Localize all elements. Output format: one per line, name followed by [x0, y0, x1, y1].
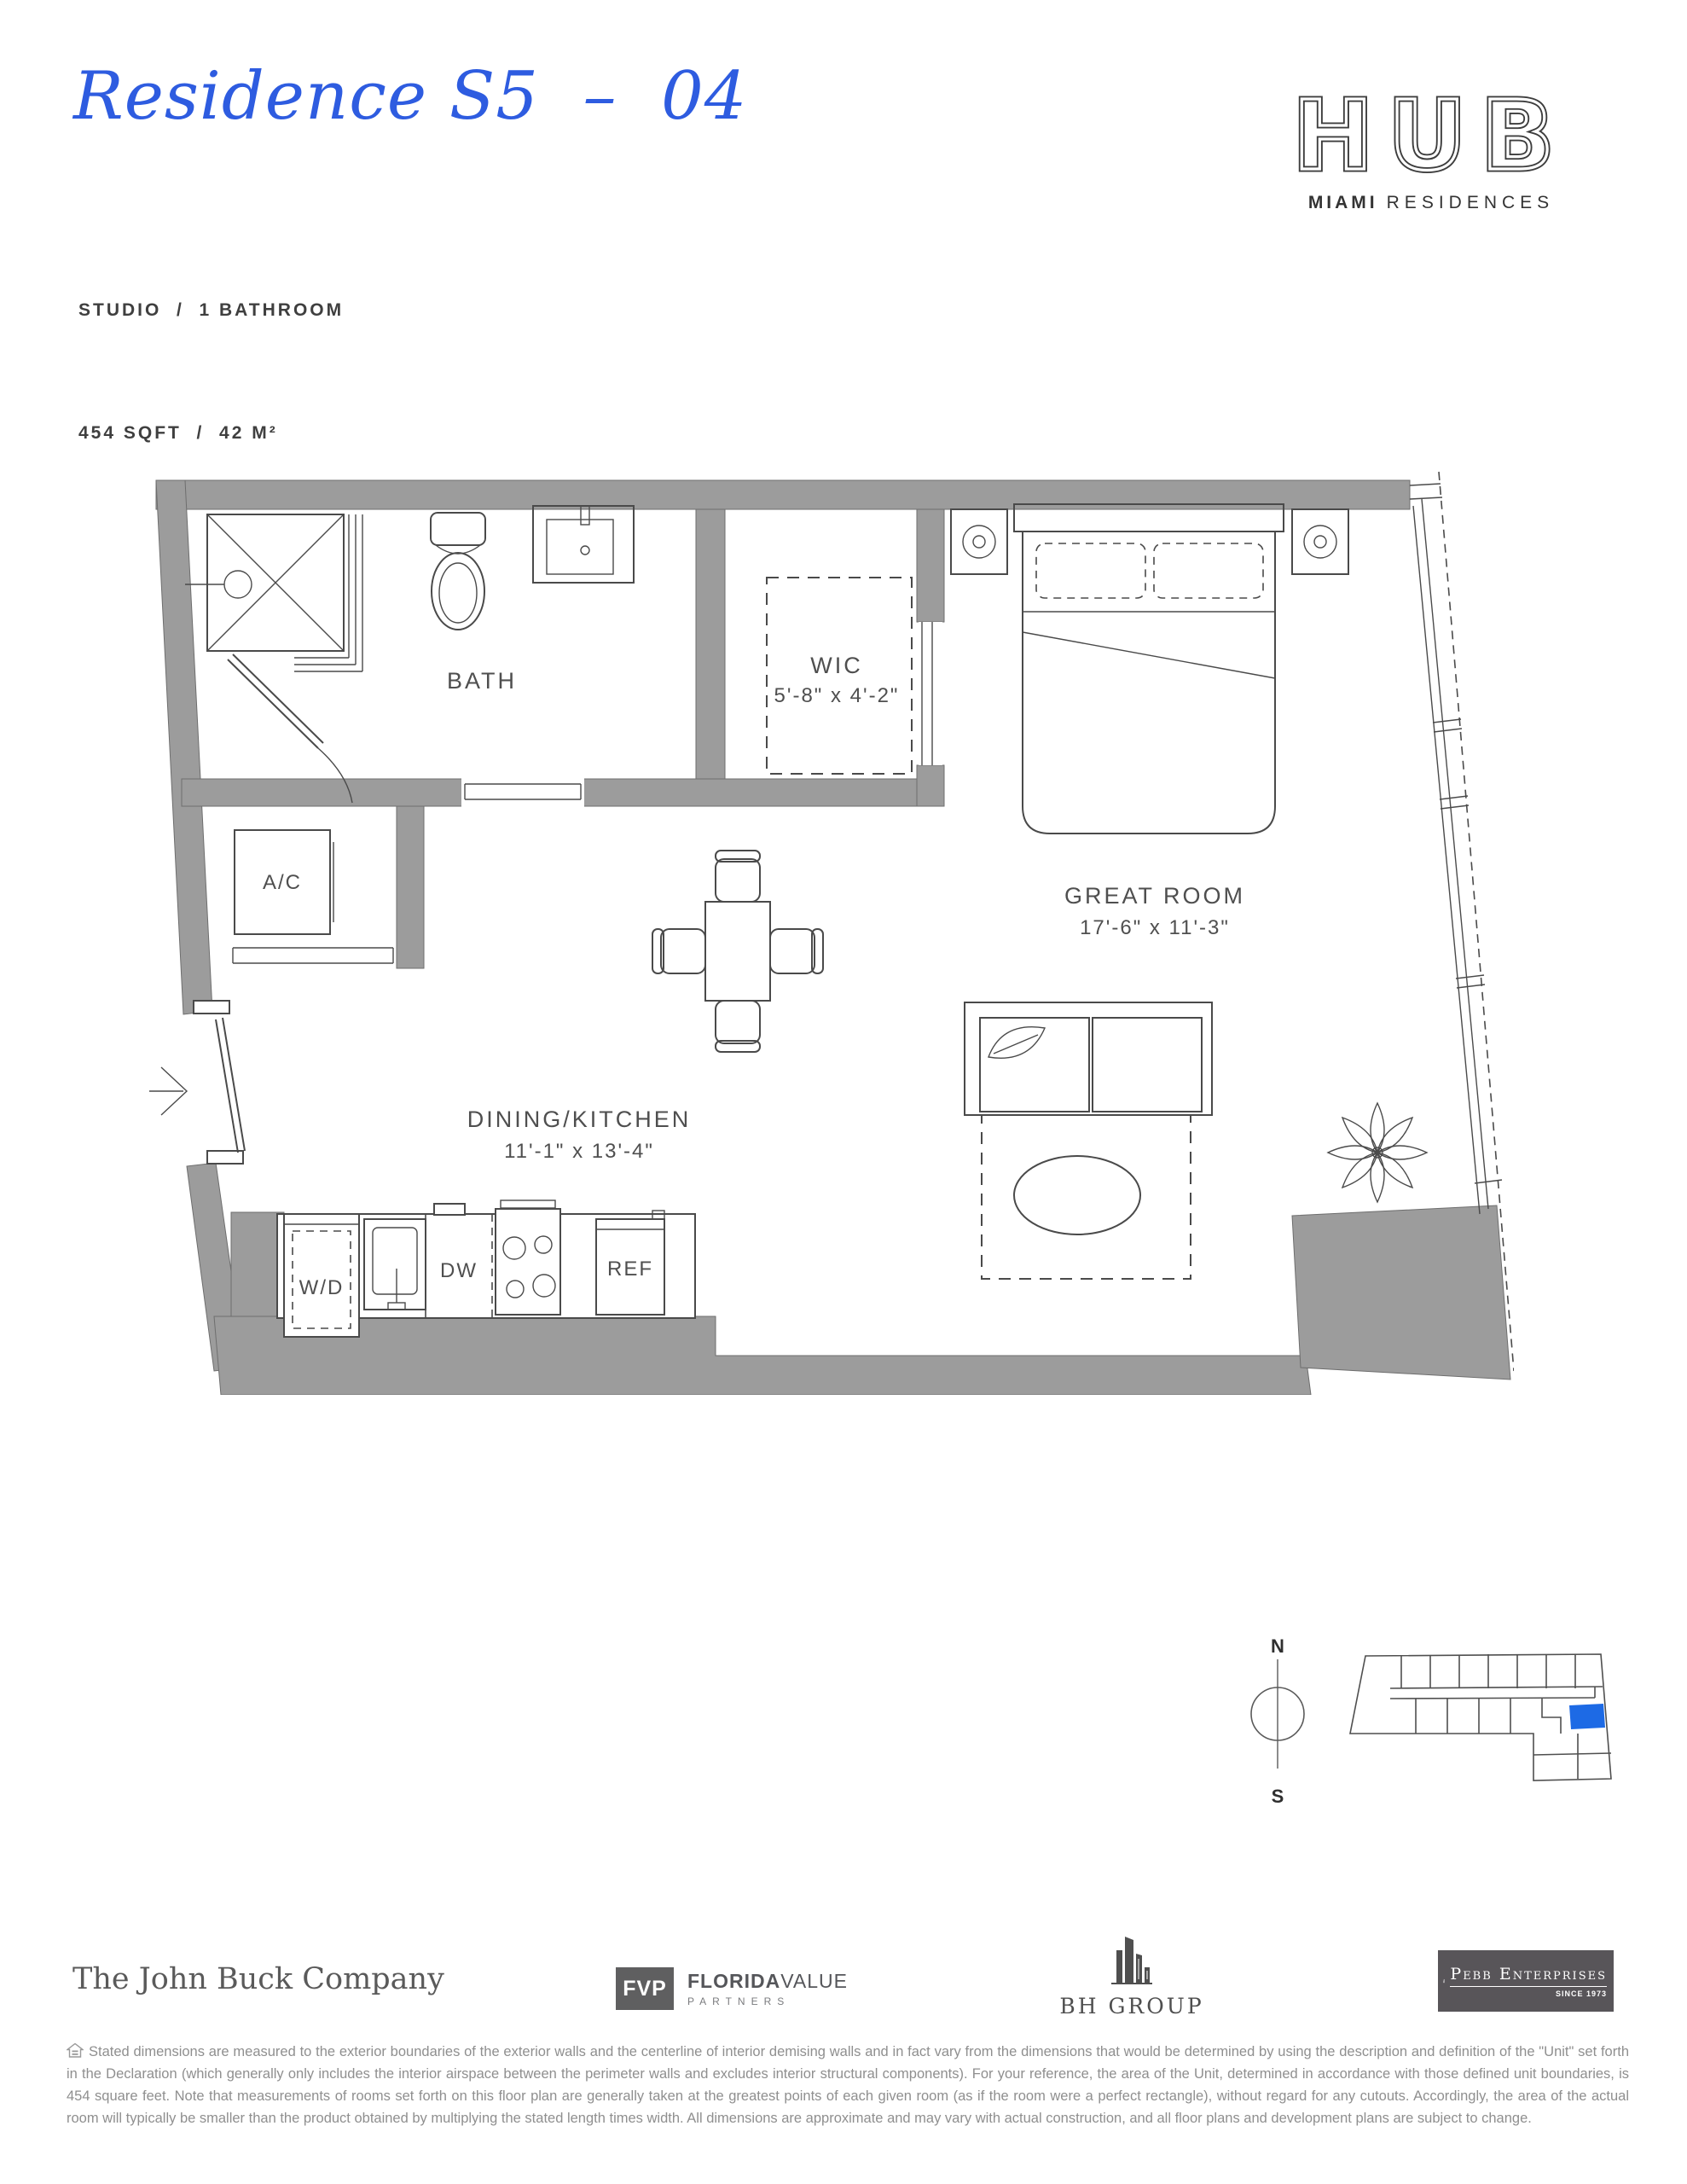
nightstand-left [951, 509, 1007, 574]
fvp-name-bold: FLORIDA [687, 1970, 780, 1992]
fvp-logo: FVP FLORIDAVALUE PARTNERS [616, 1967, 848, 2010]
compass-icon: N S [1251, 1635, 1304, 1807]
great-room-dims: 17'-6" x 11'-3" [1080, 916, 1230, 939]
ac-closet: A/C [233, 830, 393, 963]
building-keyplan [1350, 1654, 1611, 1780]
pebb-building-icon [1443, 1956, 1445, 2006]
wic-label: WIC [810, 653, 862, 678]
counter-bump [434, 1204, 465, 1215]
entry-door [194, 1001, 245, 1164]
washer-dryer: W/D [284, 1214, 359, 1337]
bath-label: BATH [447, 668, 517, 694]
fvp-subtitle: PARTNERS [687, 1995, 848, 2007]
window-mullions [1433, 719, 1502, 1183]
kitchen: W/D DW REF [277, 1200, 695, 1337]
pebb-since: SINCE 1973 [1450, 1989, 1607, 1998]
unit-area-line: 454 SQFT / 42 M² [78, 413, 344, 454]
walk-in-closet: WIC 5'-8" x 4'-2" [767, 578, 942, 774]
unit-type-line: STUDIO / 1 BATHROOM [78, 290, 344, 331]
unit-specs: STUDIO / 1 BATHROOM 454 SQFT / 42 M² [78, 208, 344, 495]
svg-text:HUB: HUB [1293, 81, 1569, 192]
ac-label: A/C [263, 871, 302, 894]
plant-icon [1328, 1103, 1427, 1202]
bathroom: BATH [185, 506, 634, 810]
neighbor-unit-mass [1292, 1205, 1510, 1380]
brand-tagline-bold: MIAMI [1308, 193, 1378, 212]
south-label: S [1272, 1786, 1284, 1807]
wic-dims: 5'-8" x 4'-2" [774, 684, 900, 707]
floor-plan: BATH WIC 5'-8" x 4'-2" A/C [149, 465, 1514, 1395]
dining-kitchen-dims: 11'-1" x 13'-4" [504, 1140, 654, 1163]
john-buck-logo: The John Buck Company [72, 1962, 444, 1996]
fvp-logo-box: FVP [616, 1967, 674, 2010]
great-room-label: GREAT ROOM [1064, 883, 1245, 909]
sleeping-area [951, 504, 1348, 834]
equal-housing-icon [67, 2043, 84, 2059]
bath-doorway-sill [461, 775, 584, 810]
dining-kitchen-label: DINING/KITCHEN [467, 1107, 692, 1132]
bh-group-logo: BH GROUP [1059, 1935, 1204, 2018]
pebb-enterprises-logo: Pebb Enterprises SINCE 1973 [1438, 1950, 1614, 2012]
svg-text:MIAMIRESIDENCES: MIAMIRESIDENCES [1308, 193, 1554, 212]
refrigerator: REF [596, 1211, 664, 1315]
nightstand-right [1292, 509, 1348, 574]
legal-disclaimer: Stated dimensions are measured to the ex… [67, 2041, 1629, 2129]
bh-buildings-icon [1108, 1935, 1156, 1986]
area-rug [982, 1115, 1191, 1279]
hub-wordmark-icon: HUB HUB [1293, 81, 1569, 192]
pebb-name: Pebb Enterprises [1450, 1965, 1607, 1987]
bh-group-name: BH GROUP [1059, 1994, 1204, 2018]
north-label: N [1271, 1635, 1284, 1657]
floorplan-flyer-page: { "colors": { "accent_blue": "#2e5ce0", … [0, 0, 1687, 2184]
hub-miami-logo: HUB HUB MIAMIRESIDENCES [1261, 72, 1602, 225]
highlighted-unit [1569, 1704, 1605, 1729]
toilet [431, 513, 485, 630]
sofa [965, 1002, 1212, 1115]
bed [1014, 504, 1284, 834]
stove [496, 1200, 560, 1315]
brand-tagline-light: RESIDENCES [1387, 193, 1555, 212]
ref-label: REF [607, 1258, 653, 1281]
wd-label: W/D [299, 1276, 345, 1299]
orientation-keyplan: N S [1220, 1617, 1638, 1817]
bathroom-sink [533, 506, 634, 583]
fvp-name-light: VALUE [780, 1970, 848, 1992]
entry-arrow-icon [149, 1067, 187, 1115]
page-title: Residence S5 – 04 [73, 58, 747, 135]
dining-table [652, 851, 823, 1052]
shower [185, 514, 362, 671]
disclaimer-text: Stated dimensions are measured to the ex… [67, 2044, 1629, 2126]
dw-label: DW [440, 1259, 478, 1282]
